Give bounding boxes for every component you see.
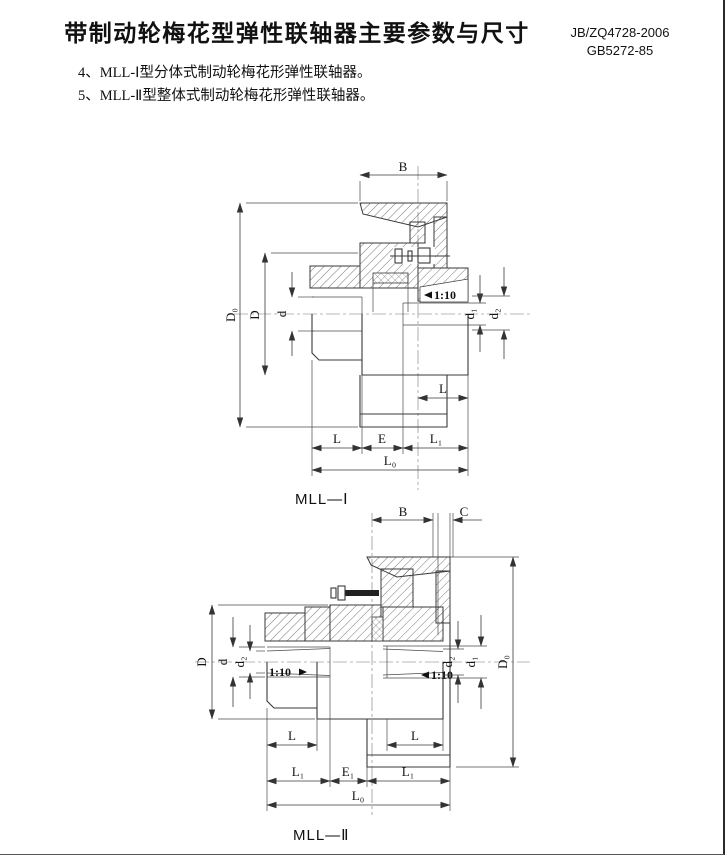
- dim-label-d2: d₂: [486, 308, 501, 319]
- dim-label-l-right: L: [411, 728, 419, 743]
- dim-label-l-hub: L: [439, 381, 447, 396]
- spider-element: [373, 273, 408, 283]
- dim-label-d-major: D: [194, 657, 209, 666]
- dim-label-b: B: [399, 159, 408, 174]
- dim-label-l0: L₀: [384, 453, 396, 468]
- note-item-5: 5、MLL-Ⅱ型整体式制动轮梅花形弹性联轴器。: [78, 85, 638, 108]
- dim-label-c: C: [460, 505, 469, 519]
- dimension-L-row: L L: [267, 719, 443, 751]
- dim-label-e: E: [378, 431, 386, 446]
- dim-label-l1-right: L₁: [402, 764, 414, 779]
- dimension-B: B: [360, 159, 447, 201]
- dim-label-d2-left: d₂: [232, 656, 247, 667]
- taper-label: 1:10: [434, 288, 456, 302]
- standard-jb: JB/ZQ4728-2006: [552, 24, 688, 42]
- figure-mll2-drawing: .hat2{fill:url(#f2h);stroke:#3a3a3a;stro…: [185, 505, 545, 820]
- coupling-section: [265, 605, 443, 641]
- notes-block: 4、MLL-Ⅰ型分体式制动轮梅花形弹性联轴器。 5、MLL-Ⅱ型整体式制动轮梅花…: [78, 62, 638, 108]
- document-page: { "page": { "title": "带制动轮梅花型弹性联轴器主要参数与尺…: [0, 0, 725, 855]
- standard-gb: GB5272-85: [552, 42, 688, 60]
- dim-label-l-left: L: [288, 728, 296, 743]
- dim-label-l0: L₀: [352, 788, 364, 803]
- dim-label-d-bore: d: [215, 658, 230, 665]
- taper-arrow-icon: [421, 672, 429, 679]
- dimension-B: B: [372, 505, 433, 557]
- dimension-C: C: [453, 505, 482, 557]
- dim-label-l: L: [333, 431, 341, 446]
- dimension-D0: D₀: [223, 203, 358, 427]
- dimension-row-bottom: L E L₁ L₀: [312, 325, 468, 476]
- dim-label-d-bore: d: [274, 310, 289, 317]
- dim-label-d0: D₀: [223, 308, 238, 322]
- standard-numbers: JB/ZQ4728-2006 GB5272-85: [552, 24, 688, 60]
- note-item-4: 4、MLL-Ⅰ型分体式制动轮梅花形弹性联轴器。: [78, 62, 638, 85]
- dimension-row-bottom: L₁ E₁ L₁ L₀: [267, 677, 450, 811]
- dim-label-d1: d₁: [463, 656, 478, 667]
- spider-element: [372, 617, 383, 641]
- taper-label: 1:10: [269, 665, 291, 679]
- figure-mll1-drawing: 1:10 B D₀ D d d₁ d₂: [222, 156, 542, 494]
- dim-label-b: B: [399, 505, 408, 519]
- dim-label-d-major: D: [247, 310, 262, 319]
- dim-label-d2-right: d₂: [440, 656, 455, 667]
- dim-label-d1: d₁: [462, 308, 477, 319]
- dim-label-l1-left: L₁: [292, 764, 304, 779]
- page-title: 带制动轮梅花型弹性联轴器主要参数与尺寸: [62, 14, 532, 48]
- outline-bottom: [267, 623, 450, 767]
- dim-label-l1: L₁: [430, 431, 442, 446]
- figure2-caption: MLL—Ⅱ: [293, 826, 350, 844]
- dim-label-d0: D₀: [495, 655, 510, 669]
- dimension-d2: d₂: [472, 267, 510, 359]
- dimension-L-right: L: [418, 375, 468, 476]
- dim-label-e1: E₁: [342, 764, 354, 779]
